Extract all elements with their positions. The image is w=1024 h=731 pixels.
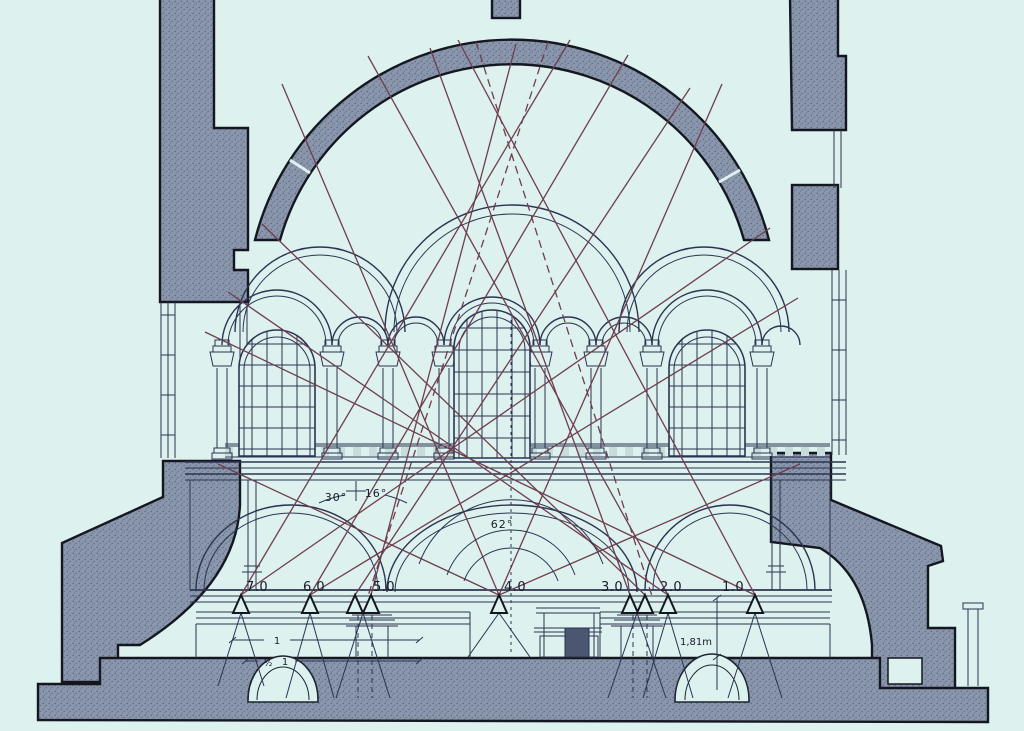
observer-marker (233, 595, 249, 613)
dome-joints (290, 160, 740, 182)
sight-line (368, 56, 668, 595)
position-label-1: 1.0 (722, 580, 744, 595)
angle-label-30: 30° (325, 491, 348, 504)
left-abutment (62, 461, 240, 682)
cross-mark-icon (346, 481, 366, 501)
window-right (669, 330, 745, 456)
position-label-6: 6.0 (303, 580, 325, 595)
observer-marker (637, 595, 653, 613)
column (584, 340, 608, 459)
section-svg: 7.0 6.0 5.0 4.0 3.0 2.0 1.0 30° 16° 62° … (0, 0, 1024, 731)
dim-label-181: 1,81m (680, 637, 712, 648)
foundation-slab (38, 658, 988, 722)
left-pier-upper (160, 0, 248, 302)
sight-line (218, 464, 499, 595)
position-label-2: 2.0 (660, 580, 682, 595)
position-label-5: 5.0 (373, 580, 395, 595)
dim-label-crypt-upper: 1 (274, 636, 280, 647)
column (640, 340, 664, 459)
position-label-7: 7.0 (246, 580, 268, 595)
observer-marker (660, 595, 676, 613)
right-pier-upper (790, 0, 846, 130)
right-pier-mid (792, 185, 838, 269)
lantern-block (492, 0, 520, 18)
observer-marker (747, 595, 763, 613)
column (210, 340, 234, 459)
position-label-3: 3.0 (601, 580, 623, 595)
window-left (239, 330, 315, 456)
observer-marker (347, 595, 363, 613)
dim-label-crypt-num: 1 (282, 657, 288, 668)
observer-marker (622, 595, 638, 613)
right-pier-niche (888, 658, 922, 684)
dim-label-crypt-frac: ½ (264, 659, 273, 669)
column (750, 340, 774, 459)
position-label-4: 4.0 (504, 580, 526, 595)
section-drawing: 7.0 6.0 5.0 4.0 3.0 2.0 1.0 30° 16° 62° … (0, 0, 1024, 731)
angle-label-16: 16° (365, 487, 388, 500)
observer-marker (302, 595, 318, 613)
column (528, 340, 552, 459)
sight-line (499, 464, 800, 595)
observer-markers (233, 595, 763, 613)
sight-line (310, 55, 628, 595)
angle-label-62: 62° (491, 518, 514, 531)
observer-marker (363, 595, 379, 613)
sight-line (355, 88, 690, 595)
column (376, 340, 400, 459)
observer-marker (491, 595, 507, 613)
